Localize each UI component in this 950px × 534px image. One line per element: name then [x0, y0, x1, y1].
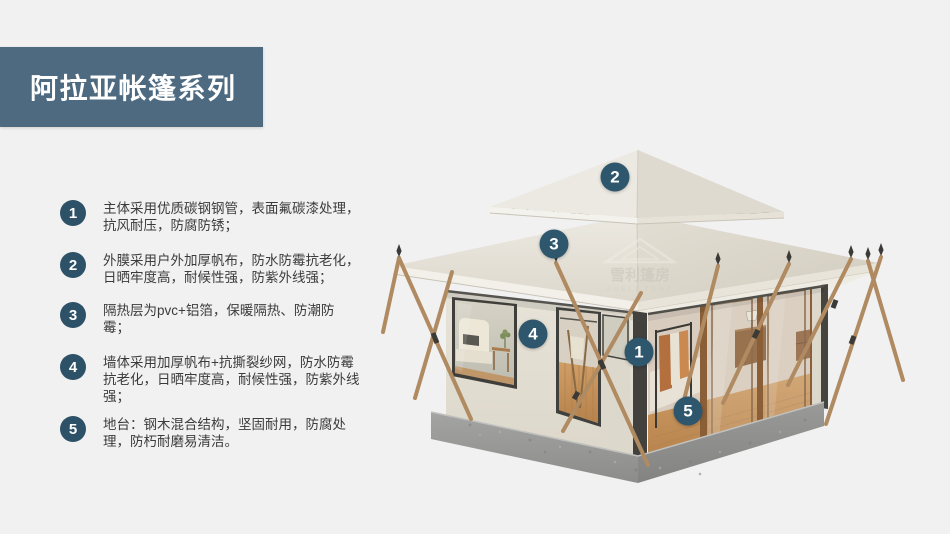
title-banner: 阿拉亚帐篷系列 [0, 47, 263, 127]
top-canopy [490, 150, 784, 224]
feature-badge-5: 5 [60, 416, 86, 442]
feature-text-5: 地台：钢木混合结构，坚固耐用，防腐处理，防朽耐磨易清洁。 [103, 416, 361, 450]
watermark-name: 雪利篷房 [610, 266, 670, 284]
tent-marker-1: 1 [625, 338, 654, 367]
feature-badge-4: 4 [60, 354, 86, 380]
feature-text-2: 外膜采用户外加厚帆布，防水防霉抗老化，日晒牢度高，耐候性强，防紫外线强； [103, 252, 361, 286]
feature-badge-2: 2 [60, 252, 86, 278]
tent-illustration: 雪利篷房 XUELI TENT [380, 128, 925, 503]
slide: 阿拉亚帐篷系列 1 主体采用优质碳钢钢管，表面氟碳漆处理，抗风耐压，防腐防锈； … [0, 0, 950, 534]
tent-marker-5: 5 [674, 397, 703, 426]
tent-svg: 雪利篷房 XUELI TENT [380, 128, 925, 503]
tent-marker-2: 2 [601, 163, 630, 192]
tent-marker-4: 4 [519, 320, 548, 349]
feature-badge-3: 3 [60, 302, 86, 328]
feature-text-1: 主体采用优质碳钢钢管，表面氟碳漆处理，抗风耐压，防腐防锈； [103, 200, 361, 234]
page-title: 阿拉亚帐篷系列 [30, 67, 237, 107]
feature-badge-1: 1 [60, 200, 86, 226]
feature-text-4: 墙体采用加厚帆布+抗撕裂纱网，防水防霉抗老化，日晒牢度高，耐候性强，防紫外线强； [103, 354, 361, 405]
tent-marker-3: 3 [540, 230, 569, 259]
feature-text-3: 隔热层为pvc+铝箔，保暖隔热、防潮防霉； [103, 302, 361, 336]
